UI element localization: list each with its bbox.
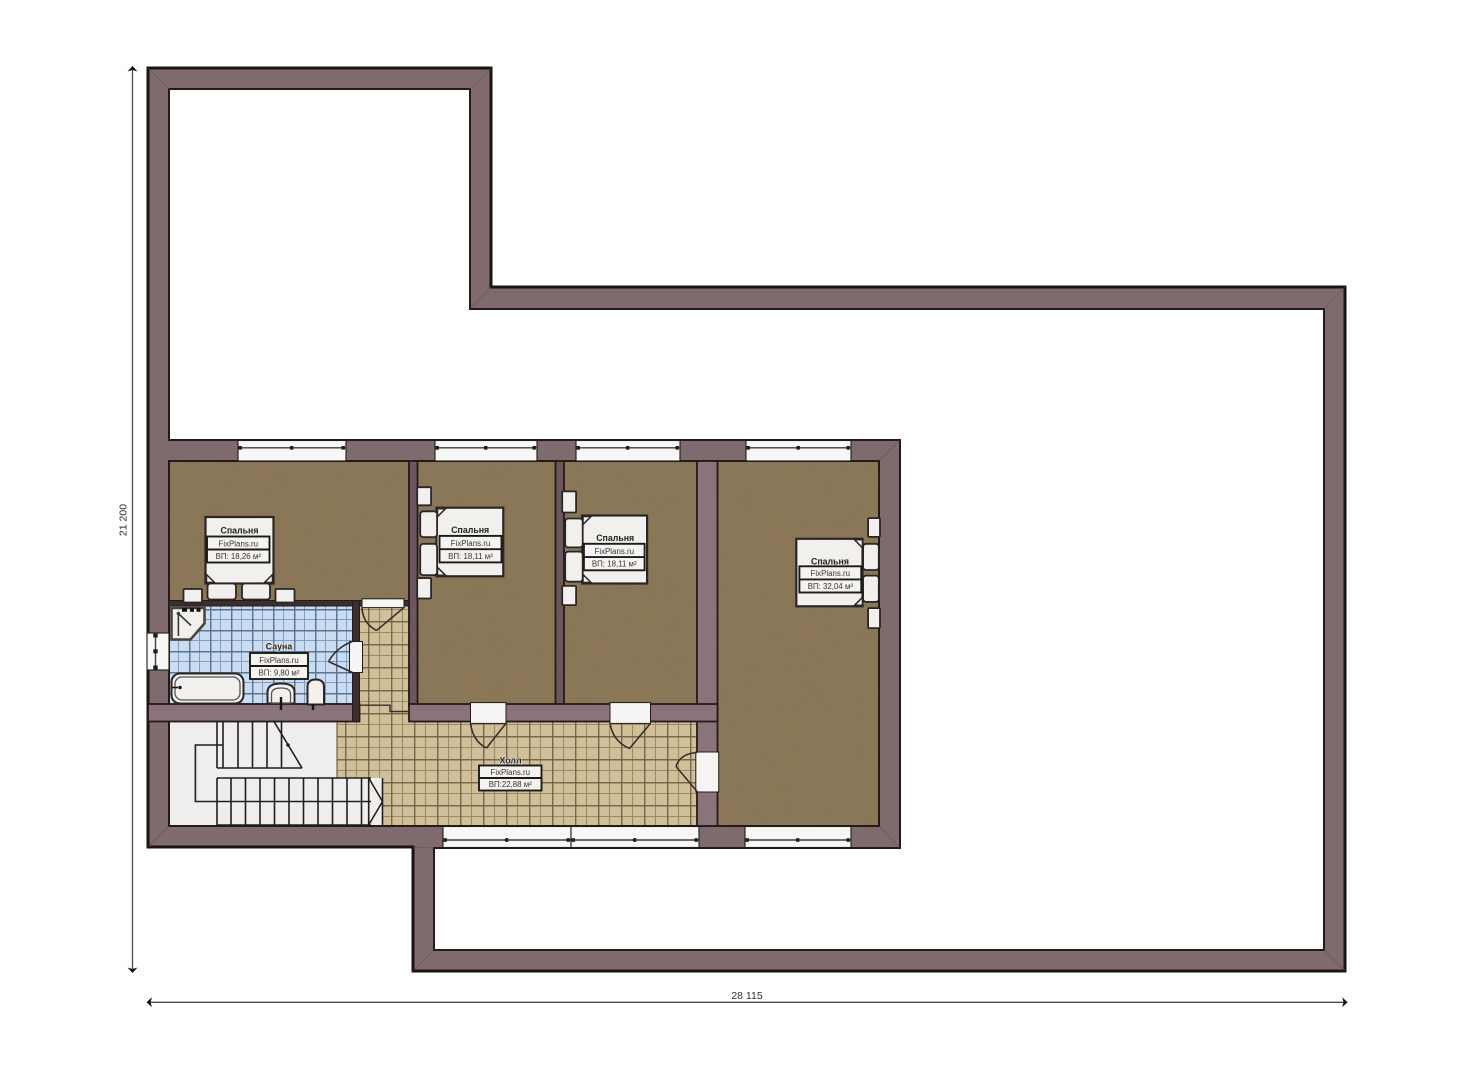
svg-text:FixPlans.ru: FixPlans.ru (259, 656, 298, 665)
svg-text:FixPlans.ru: FixPlans.ru (451, 539, 490, 548)
svg-text:Спальня: Спальня (596, 533, 634, 543)
svg-text:ВП: 18,11 м²: ВП: 18,11 м² (592, 560, 637, 569)
svg-text:ВП: 18,26 м²: ВП: 18,26 м² (216, 552, 262, 561)
svg-text:Холл: Холл (499, 756, 521, 766)
svg-text:ВП: 9,80 м²: ВП: 9,80 м² (259, 668, 300, 677)
svg-text:FixPlans.ru: FixPlans.ru (811, 569, 850, 578)
svg-text:21 200: 21 200 (118, 504, 130, 536)
svg-text:ВП:22,88 м²: ВП:22,88 м² (489, 780, 532, 789)
svg-text:ВП: 18,11 м²: ВП: 18,11 м² (448, 552, 493, 561)
svg-text:Спальня: Спальня (451, 525, 489, 535)
svg-text:ВП: 32,04 м²: ВП: 32,04 м² (808, 582, 854, 591)
svg-text:FixPlans.ru: FixPlans.ru (219, 539, 258, 548)
svg-text:Спальня: Спальня (220, 526, 258, 536)
svg-text:FixPlans.ru: FixPlans.ru (595, 547, 634, 556)
svg-text:28 115: 28 115 (731, 990, 762, 1002)
svg-text:Спальня: Спальня (811, 557, 849, 567)
svg-text:Сауна: Сауна (266, 642, 293, 652)
svg-text:FixPlans.ru: FixPlans.ru (491, 768, 530, 777)
